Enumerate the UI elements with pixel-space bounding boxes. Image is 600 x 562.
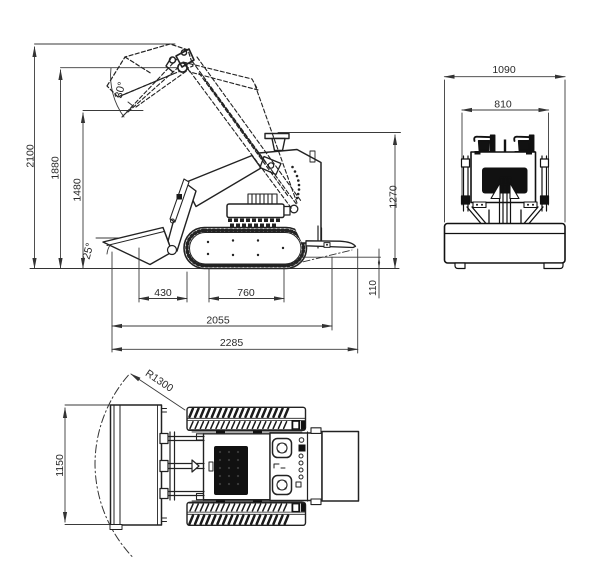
svg-text:2100: 2100 [25, 144, 37, 168]
svg-text:430: 430 [154, 287, 172, 299]
svg-text:1270: 1270 [388, 185, 400, 209]
svg-text:2055: 2055 [206, 315, 230, 327]
svg-text:1150: 1150 [54, 454, 66, 477]
svg-text:1090: 1090 [492, 64, 516, 76]
svg-text:R1300: R1300 [143, 367, 175, 394]
svg-text:1880: 1880 [50, 156, 62, 180]
svg-text:760: 760 [237, 287, 255, 299]
svg-text:1480: 1480 [72, 178, 84, 202]
svg-text:810: 810 [494, 99, 512, 111]
svg-text:30°: 30° [113, 81, 129, 100]
svg-text:110: 110 [368, 280, 379, 296]
svg-text:2285: 2285 [220, 337, 244, 349]
